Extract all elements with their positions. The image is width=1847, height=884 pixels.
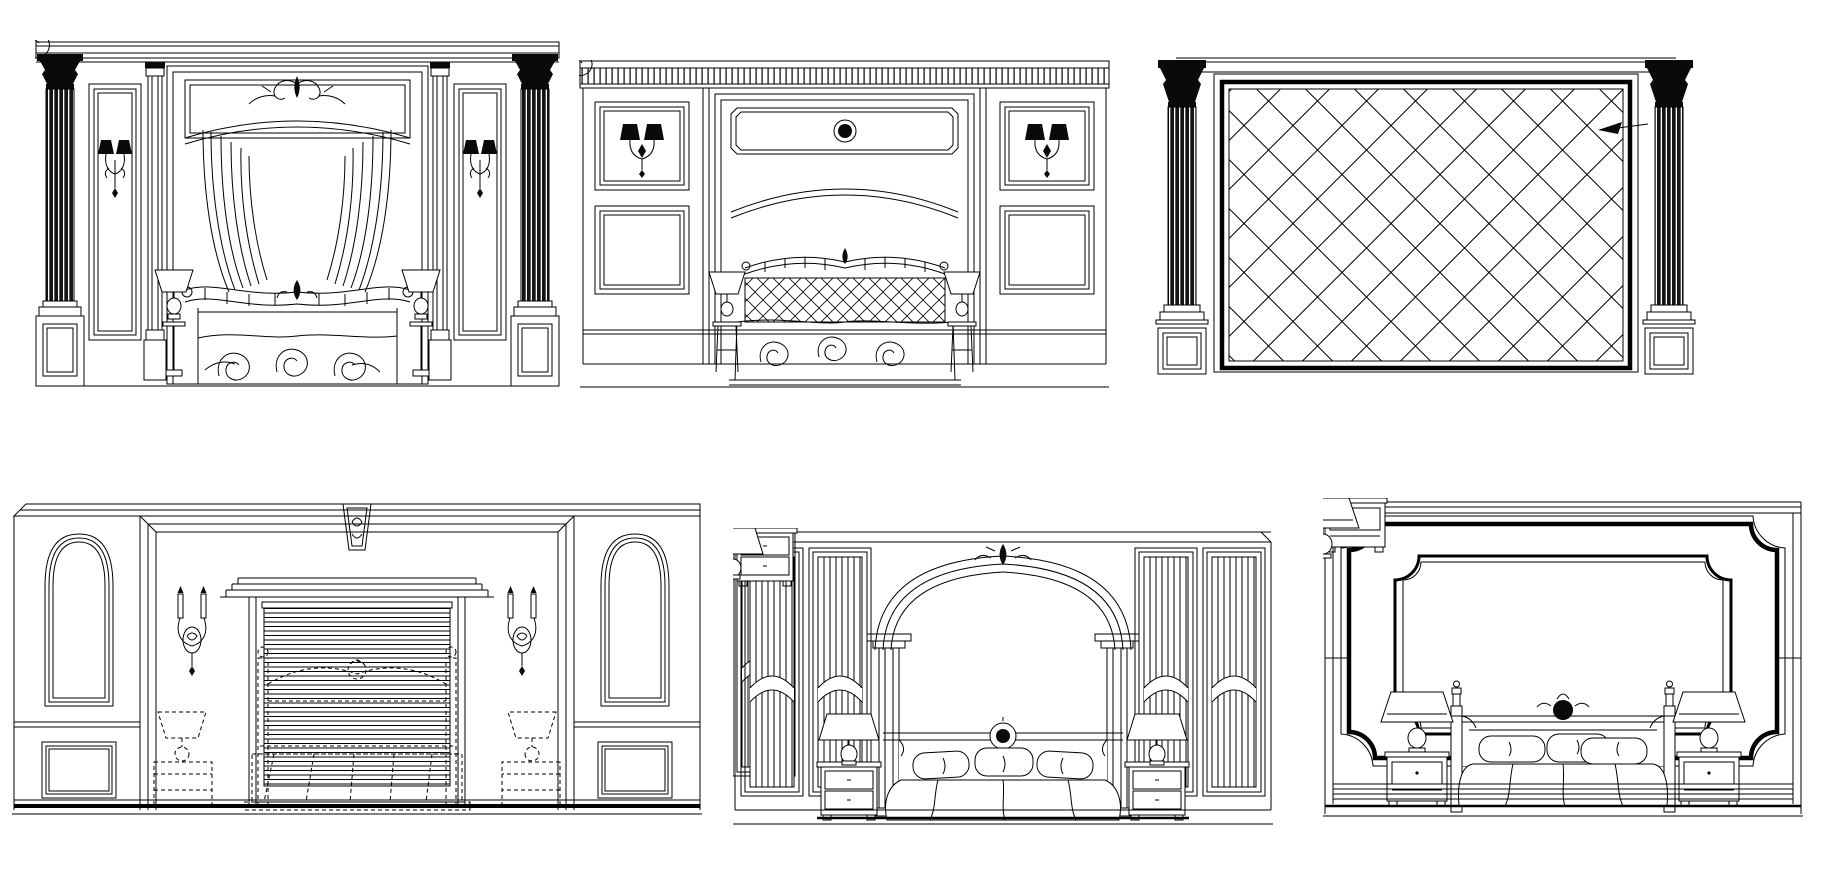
crest-ornament-icon [975,544,1031,565]
draped-duvet [1459,764,1668,806]
table-lamp-icon [155,270,193,376]
dashed-table-lamp-icon [154,712,212,806]
curtain [203,130,267,292]
corinthian-column [1156,60,1208,374]
pillows [1479,734,1647,764]
side-wall [14,516,156,810]
candle-sconce-icon [178,586,207,676]
candle-stand-lamp-icon [709,272,745,372]
diamond-lattice-panel [1214,74,1638,372]
elevation-window-blinds-bed [12,498,702,818]
corinthian-column [36,54,84,386]
fluted-frieze [580,61,1109,88]
valance-rail [182,280,413,306]
bed [1451,681,1675,812]
side-panel [89,84,141,340]
cad-sheet [0,0,1847,884]
elevation-paneled-wall-bed [579,60,1110,390]
rosette-header [731,108,958,154]
center-panel [715,94,974,364]
arched-side-panel [45,534,113,706]
elevation-tufted-wall [1146,52,1705,377]
pilaster [144,62,166,380]
cornice [14,504,700,516]
swirl-bedspread [579,60,961,385]
elevation-canopy-bed [35,40,560,390]
entablature [36,42,559,62]
draped-duvet [886,780,1121,820]
venetian-blinds [264,608,450,786]
crest-rail [742,248,948,274]
top-rail [1176,58,1676,72]
pillows [912,748,1093,779]
wall-sconce-icon [98,140,132,198]
crest-panel [185,76,410,144]
chair-rail [583,330,1106,334]
window-pediment [220,578,494,597]
bed [579,60,961,385]
lattice-headboard [745,278,945,322]
bed [35,40,405,384]
elevation-molded-frame-bed [1323,498,1803,828]
wainscot-panel [42,742,116,798]
swirl-bedspread [35,40,405,384]
headboard-crest-icon [1553,700,1573,720]
alcove-head-molding [148,524,566,532]
elevation-arched-alcove-bed [733,528,1273,828]
side-panel-stack [583,88,709,364]
double-sconce-icon [620,124,664,178]
keystone-icon [343,504,371,550]
